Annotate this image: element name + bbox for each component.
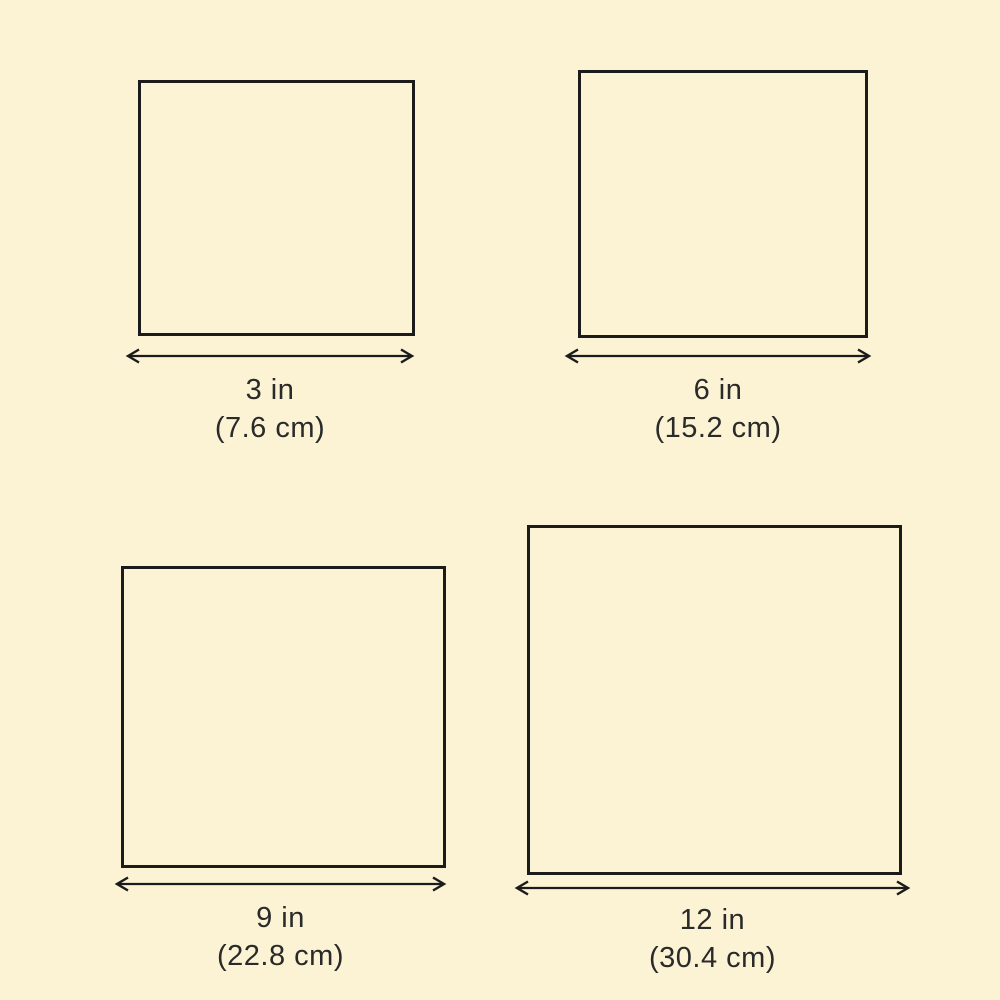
size-label-inches: 6 in <box>563 371 873 409</box>
width-dimension-arrow <box>513 879 912 897</box>
size-label-cm: (22.8 cm) <box>113 937 448 975</box>
size-label-cm: (7.6 cm) <box>124 409 416 447</box>
size-label-inches: 12 in <box>513 901 912 939</box>
square-3in-outline <box>138 80 415 336</box>
size-label-inches: 9 in <box>113 899 448 937</box>
size-label-group: 12 in (30.4 cm) <box>513 901 912 977</box>
width-dimension-arrow <box>124 347 416 365</box>
size-label-cm: (15.2 cm) <box>563 409 873 447</box>
size-label-inches: 3 in <box>124 371 416 409</box>
size-label-cm: (30.4 cm) <box>513 939 912 977</box>
square-6in-outline <box>578 70 868 338</box>
size-label-group: 6 in (15.2 cm) <box>563 371 873 447</box>
square-12in-outline <box>527 525 902 875</box>
square-9in-outline <box>121 566 446 868</box>
width-dimension-arrow <box>563 347 873 365</box>
width-dimension-arrow <box>113 875 448 893</box>
size-label-group: 3 in (7.6 cm) <box>124 371 416 447</box>
size-label-group: 9 in (22.8 cm) <box>113 899 448 975</box>
